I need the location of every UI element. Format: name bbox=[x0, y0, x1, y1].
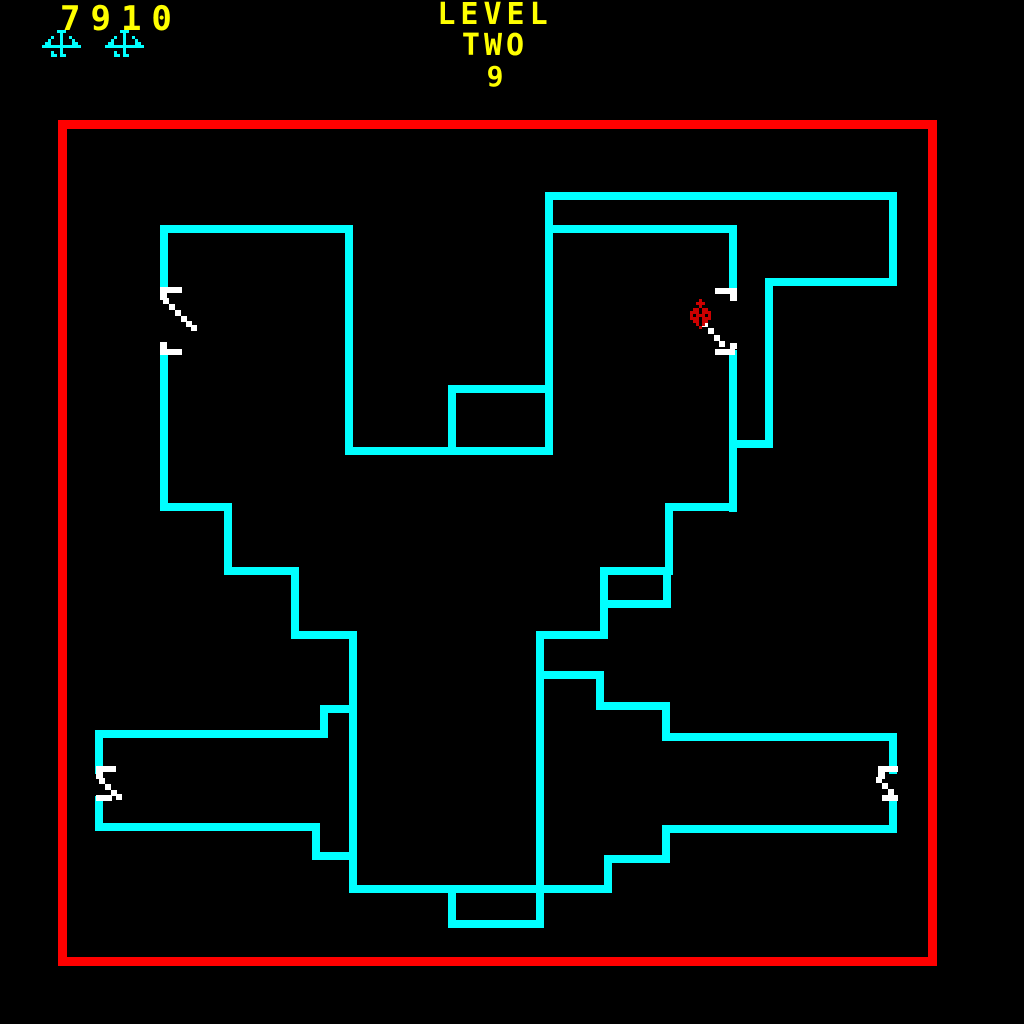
maze-wall bbox=[665, 503, 673, 575]
door-blade-dash bbox=[163, 298, 169, 304]
door-blade-dash bbox=[175, 310, 181, 316]
maze-wall bbox=[536, 631, 544, 928]
maze-wall bbox=[224, 503, 232, 575]
door-blade-dash bbox=[719, 341, 725, 347]
maze bbox=[0, 0, 1024, 1024]
maze-wall bbox=[608, 855, 670, 863]
door-blade-dash bbox=[116, 794, 122, 800]
maze-wall bbox=[596, 671, 604, 710]
door-bracket bbox=[715, 288, 737, 294]
door-bracket bbox=[160, 349, 182, 355]
door-blade-dash bbox=[888, 789, 894, 795]
door-left-corridor bbox=[96, 766, 122, 801]
door-right-corridor bbox=[876, 766, 898, 801]
door-blade-dash bbox=[714, 335, 720, 341]
door-blade-dash bbox=[876, 777, 882, 783]
maze-wall bbox=[224, 567, 299, 575]
maze-wall bbox=[95, 730, 328, 738]
maze-wall bbox=[662, 733, 897, 741]
maze-wall bbox=[604, 855, 612, 893]
maze-wall bbox=[545, 192, 553, 455]
door-bracket bbox=[160, 342, 167, 349]
maze-wall bbox=[765, 278, 773, 448]
maze-doors bbox=[96, 287, 898, 801]
maze-wall bbox=[889, 192, 897, 286]
door-blade-dash bbox=[169, 304, 175, 310]
game-screen[interactable]: 7910 LEVEL TWO 9 bbox=[0, 0, 1024, 1024]
maze-wall bbox=[729, 350, 737, 512]
maze-wall bbox=[160, 350, 168, 511]
maze-wall bbox=[160, 225, 353, 233]
maze-wall bbox=[729, 225, 737, 292]
door-bracket bbox=[96, 766, 116, 772]
maze-wall bbox=[544, 671, 604, 679]
door-bracket bbox=[160, 287, 182, 293]
maze-walls bbox=[95, 192, 897, 928]
door-blade-dash bbox=[99, 778, 105, 784]
maze-wall bbox=[349, 885, 612, 893]
door-bracket bbox=[878, 766, 898, 772]
door-bracket bbox=[715, 349, 735, 355]
maze-wall bbox=[291, 567, 299, 639]
maze-wall bbox=[291, 631, 357, 639]
door-bracket bbox=[730, 294, 737, 301]
door-bracket bbox=[96, 795, 112, 801]
maze-wall bbox=[345, 225, 353, 455]
maze-wall bbox=[448, 920, 543, 928]
door-blade-dash bbox=[708, 328, 714, 334]
maze-wall bbox=[608, 600, 671, 608]
maze-wall bbox=[448, 385, 545, 393]
maze-wall bbox=[670, 825, 897, 833]
door-blade-dash bbox=[105, 784, 111, 790]
door-blade-dash bbox=[882, 783, 888, 789]
door-bracket bbox=[730, 343, 737, 349]
maze-wall bbox=[665, 503, 737, 511]
maze-wall bbox=[553, 192, 897, 200]
maze-wall bbox=[770, 278, 897, 286]
maze-wall bbox=[448, 385, 456, 455]
maze-wall bbox=[600, 567, 672, 575]
maze-wall bbox=[160, 503, 232, 511]
door-bracket bbox=[882, 795, 898, 801]
maze-wall bbox=[600, 567, 608, 639]
maze-wall bbox=[553, 225, 737, 233]
door-blade-dash bbox=[191, 325, 197, 331]
door-left-upper bbox=[160, 287, 197, 355]
maze-wall bbox=[160, 225, 168, 292]
door-bracket bbox=[96, 772, 103, 779]
maze-wall bbox=[604, 702, 670, 710]
maze-wall bbox=[536, 631, 608, 639]
maze-wall bbox=[312, 852, 357, 860]
maze-wall bbox=[95, 823, 320, 831]
